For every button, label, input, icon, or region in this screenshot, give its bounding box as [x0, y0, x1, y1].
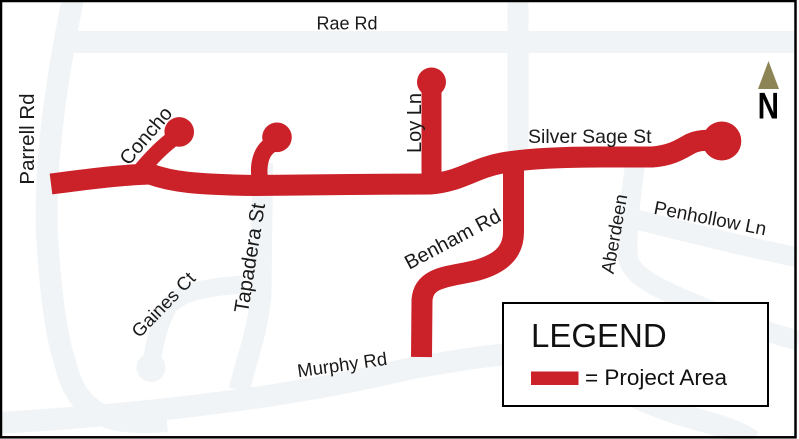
svg-text:Rae Rd: Rae Rd — [316, 14, 377, 34]
svg-text:Loy Ln: Loy Ln — [404, 93, 426, 153]
svg-text:= Project Area: = Project Area — [585, 365, 727, 390]
svg-text:Parrell Rd: Parrell Rd — [16, 93, 39, 184]
svg-text:N: N — [758, 87, 779, 128]
svg-text:Silver Sage St: Silver Sage St — [528, 126, 652, 148]
svg-text:LEGEND: LEGEND — [531, 317, 667, 354]
